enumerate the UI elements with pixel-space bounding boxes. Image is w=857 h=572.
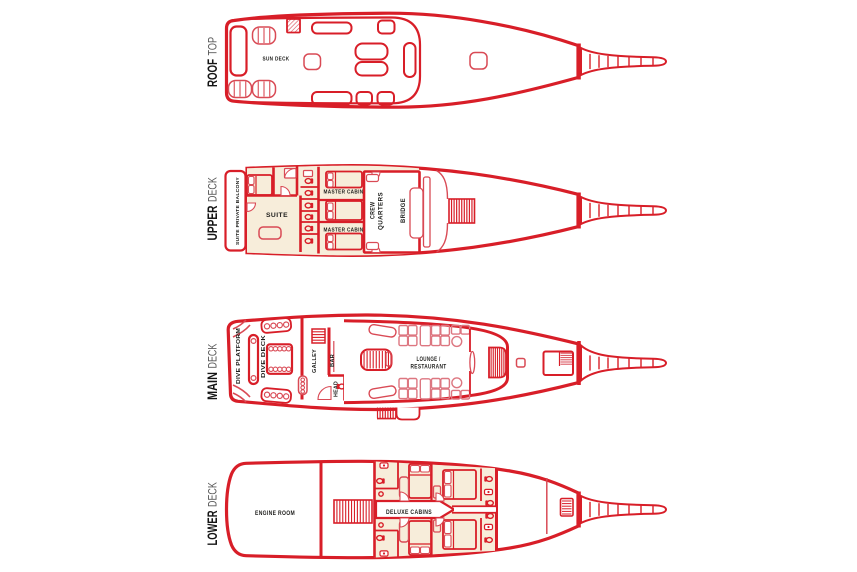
svg-text:UPPER: UPPER <box>205 206 221 241</box>
svg-text:GALLEY: GALLEY <box>312 349 318 373</box>
svg-text:RESTAURANT: RESTAURANT <box>411 365 447 371</box>
svg-text:QUARTERS: QUARTERS <box>379 192 385 230</box>
svg-text:ROOF: ROOF <box>205 59 221 87</box>
svg-text:ENGINE ROOM: ENGINE ROOM <box>255 510 295 517</box>
svg-text:CREW: CREW <box>371 202 377 220</box>
svg-text:DELUXE CABINS: DELUXE CABINS <box>386 509 432 516</box>
svg-text:DECK: DECK <box>206 177 220 202</box>
svg-text:MASTER CABIN: MASTER CABIN <box>324 190 364 196</box>
svg-text:MAIN: MAIN <box>205 372 221 400</box>
svg-text:LOWER: LOWER <box>205 511 221 546</box>
svg-text:LOUNGE /: LOUNGE / <box>417 357 441 363</box>
svg-text:DECK: DECK <box>206 344 220 369</box>
svg-text:DECK: DECK <box>206 482 220 507</box>
svg-text:MASTER CABIN: MASTER CABIN <box>324 228 364 234</box>
svg-text:SUITE PRIVATE BALCONY: SUITE PRIVATE BALCONY <box>235 176 241 245</box>
svg-text:SUITE: SUITE <box>266 212 288 219</box>
svg-text:BRIDGE: BRIDGE <box>401 198 407 223</box>
svg-text:SUN DECK: SUN DECK <box>263 57 290 63</box>
svg-text:TOP: TOP <box>206 37 220 56</box>
svg-text:DIVE PLATFORM: DIVE PLATFORM <box>236 328 242 384</box>
svg-text:BAR: BAR <box>330 354 336 367</box>
